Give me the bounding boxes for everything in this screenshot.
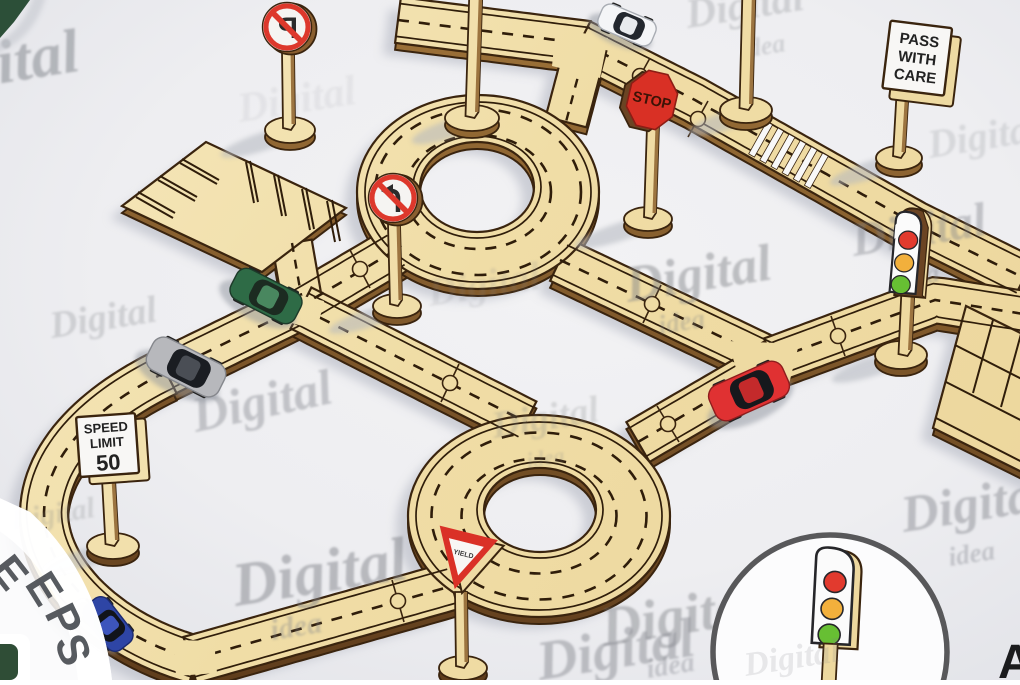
svg-text:A: A [998, 636, 1020, 680]
svg-text:50: 50 [95, 449, 121, 476]
